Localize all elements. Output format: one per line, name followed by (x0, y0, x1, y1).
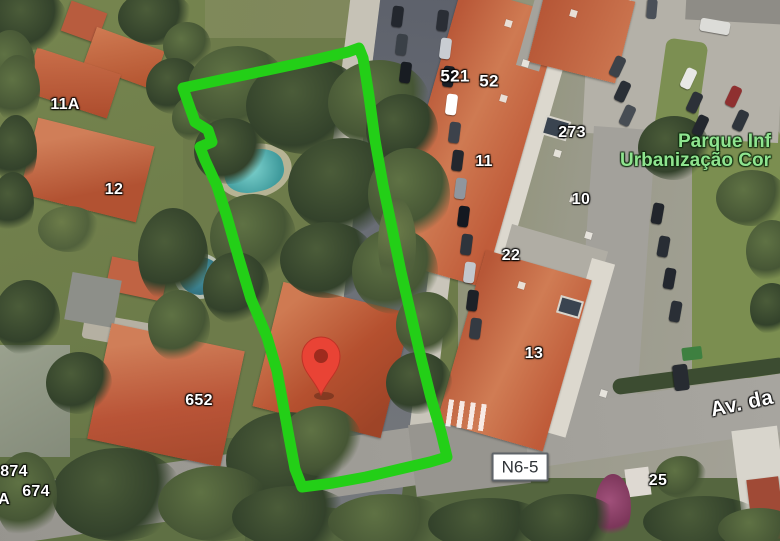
house-number-label-10: 10 (572, 192, 590, 208)
house-number-label-25: 25 (649, 473, 667, 489)
map-overlay (0, 0, 780, 541)
pin-shadow (314, 392, 334, 400)
property-outline (183, 48, 447, 487)
house-number-label-674: 674 (22, 484, 50, 500)
house-number-label-12: 12 (105, 182, 123, 198)
road-badge-n6-5: N6-5 (492, 453, 549, 482)
house-number-label-11: 11 (475, 154, 493, 170)
park-label-line1: Parque Inf (678, 132, 771, 151)
house-number-label-874: 874 (0, 464, 28, 480)
house-number-label-22: 22 (502, 248, 520, 264)
house-number-label-partial-a: A (0, 492, 10, 508)
house-number-label-52: 52 (479, 73, 499, 90)
house-number-label-273: 273 (558, 125, 586, 141)
house-number-label-652: 652 (185, 393, 213, 409)
map-pin-icon[interactable] (302, 337, 340, 395)
house-number-label-11a: 11A (50, 97, 79, 113)
satellite-map-canvas[interactable]: 11A 12 652 874 674 A 521 52 11 273 10 22… (0, 0, 780, 541)
house-number-label-13: 13 (525, 346, 543, 362)
park-label-line2: Urbanização Cor (620, 151, 771, 170)
house-number-label-521: 521 (440, 68, 469, 85)
